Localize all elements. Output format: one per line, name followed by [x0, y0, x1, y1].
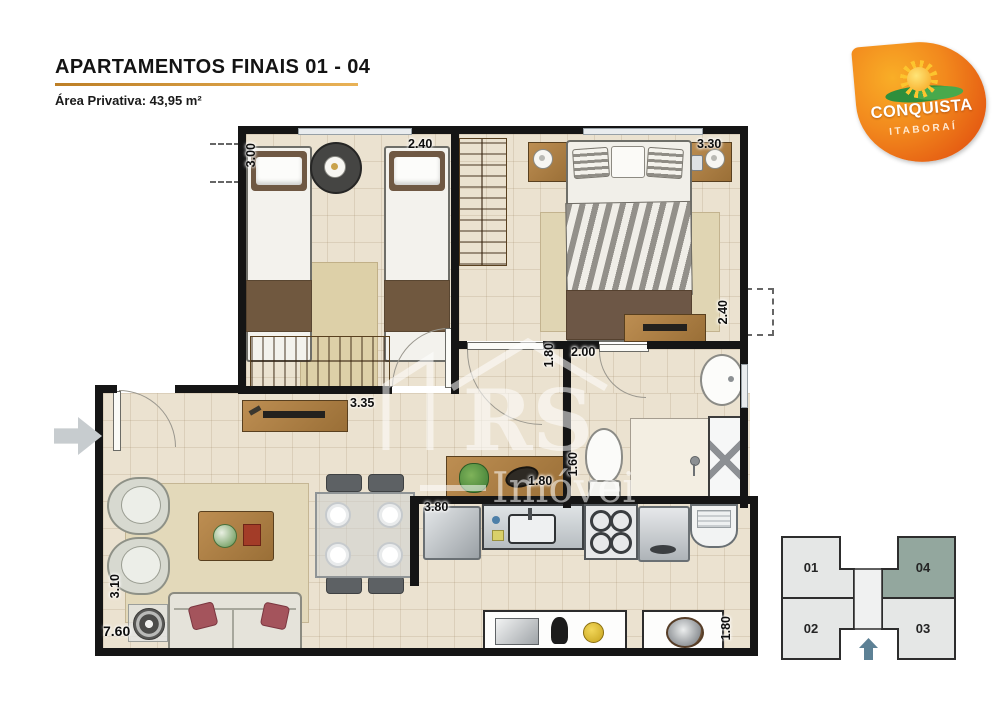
coffee-table	[198, 511, 274, 561]
entry-door	[113, 391, 121, 451]
pillow	[646, 147, 684, 179]
bottle-icon	[551, 617, 568, 644]
dim-hall-depth: 1.80	[542, 343, 556, 367]
wall	[175, 385, 246, 393]
window	[298, 128, 412, 135]
wall	[740, 126, 748, 508]
wall	[563, 341, 571, 508]
pillow	[572, 147, 610, 179]
lamp-icon	[705, 149, 725, 169]
window	[583, 128, 703, 135]
blanket	[246, 280, 312, 332]
double-bed	[566, 140, 692, 342]
wall	[95, 648, 758, 656]
round-nightstand	[310, 142, 362, 194]
wall	[451, 126, 459, 394]
projection-dashed-box	[746, 288, 774, 336]
armchair	[107, 477, 170, 535]
wardrobe	[459, 138, 507, 266]
wardrobe	[250, 336, 390, 388]
wall	[451, 341, 467, 349]
refrigerator	[423, 506, 481, 560]
wall	[410, 496, 758, 504]
place-setting	[325, 502, 351, 528]
plant-icon	[459, 463, 489, 493]
dim-bedroom2-length: 2.40	[408, 137, 432, 151]
blanket	[384, 280, 450, 332]
sofa-pillow	[260, 602, 290, 631]
keyplan-corridor	[854, 569, 882, 629]
dim-bath-width: 2.00	[571, 345, 595, 359]
master-door	[467, 342, 545, 350]
dim-bath-depth: 1.60	[566, 452, 580, 476]
telephone-icon	[691, 155, 703, 171]
dining-chair	[326, 576, 362, 594]
service-bench	[483, 610, 627, 652]
lamp-icon	[533, 149, 553, 169]
sofa-pillow	[187, 601, 218, 631]
place-setting	[377, 502, 403, 528]
faucet-icon	[528, 508, 532, 520]
tv-sideboard	[242, 400, 348, 432]
dim-master-depth: 2.40	[716, 300, 730, 324]
laundry-tank	[690, 504, 738, 548]
dim-apartment-width: 7.60	[103, 623, 130, 639]
pillow	[251, 151, 307, 191]
service-bench	[642, 610, 724, 652]
dim-living-depth: 3.10	[108, 574, 122, 598]
private-area-label: Área Privativa: 43,95 m²	[55, 93, 202, 108]
shower-glass-box	[708, 416, 742, 504]
dining-chair	[368, 576, 404, 594]
toilet	[584, 428, 622, 500]
wall	[647, 341, 748, 349]
washing-machine	[638, 506, 690, 562]
title-underline	[55, 83, 358, 86]
dim-master-length: 3.30	[697, 137, 721, 151]
speaker-icon	[133, 608, 165, 640]
dresser-tv-stand	[624, 314, 706, 342]
wall	[238, 386, 392, 394]
laundry-basket-icon	[666, 617, 704, 648]
striped-duvet	[565, 201, 693, 297]
pillow	[611, 146, 645, 178]
dim-hall-cabinet: 1.80	[528, 474, 552, 488]
dim-bedroom2-width: 3.00	[244, 143, 258, 167]
keyplan-label-02: 02	[804, 621, 818, 636]
keyplan: 01 04 02 03	[772, 522, 972, 672]
stove	[584, 504, 638, 560]
window	[741, 364, 748, 408]
keyplan-label-01: 01	[804, 560, 818, 575]
dim-service-depth: 1.80	[719, 616, 733, 640]
projection-dashed-line	[210, 181, 240, 183]
wall	[95, 385, 117, 393]
single-bed	[246, 146, 312, 362]
shower-head-icon	[686, 456, 702, 476]
keyplan-label-04: 04	[916, 560, 931, 575]
nightstand	[528, 142, 570, 182]
bathroom-sink	[700, 354, 744, 406]
place-setting	[325, 542, 351, 568]
bathroom-door	[599, 344, 649, 352]
side-table-speaker	[128, 604, 168, 642]
dim-kitchen-width: 3.80	[424, 500, 448, 514]
tv-icon	[643, 324, 687, 331]
tray-icon	[495, 618, 539, 645]
remote-icon	[249, 405, 262, 415]
dim-living-wall: 3.35	[350, 396, 374, 410]
wall	[410, 496, 419, 586]
keyplan-label-03: 03	[916, 621, 930, 636]
brand-logo: CONQUISTA ITABORAÍ	[851, 37, 991, 168]
tv-icon	[263, 411, 325, 418]
kitchen-sink-counter	[482, 504, 584, 550]
round-dish-icon	[583, 622, 604, 643]
flowers-icon	[213, 524, 237, 548]
wall	[750, 496, 758, 656]
pillow	[389, 151, 445, 191]
sofa	[168, 592, 302, 654]
keyplan-north-arrow-icon	[859, 638, 878, 660]
page: APARTAMENTOS FINAIS 01 - 04 Área Privati…	[0, 0, 1000, 713]
dining-chair	[326, 474, 362, 492]
book-icon	[243, 524, 261, 546]
lamp-icon	[324, 156, 346, 178]
dining-table	[315, 492, 415, 578]
dining-chair	[368, 474, 404, 492]
place-setting	[377, 542, 403, 568]
page-title: APARTAMENTOS FINAIS 01 - 04	[55, 56, 370, 79]
projection-dashed-line	[210, 143, 240, 145]
wall	[95, 385, 103, 656]
